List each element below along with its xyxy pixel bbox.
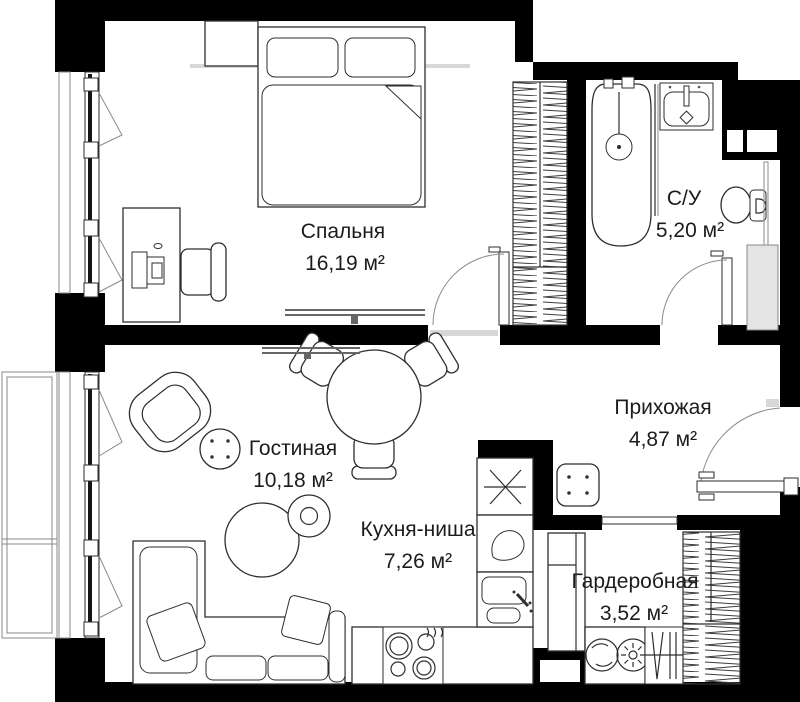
label-wardrobe-area: 3,52 м² xyxy=(600,602,668,625)
sofa-armrest xyxy=(329,611,345,682)
monitor xyxy=(132,252,147,288)
wall-bottom xyxy=(55,682,800,702)
casement-swing xyxy=(99,93,122,146)
tub-faucet xyxy=(604,79,613,88)
seat-cushion xyxy=(268,656,328,680)
wall-top xyxy=(55,0,533,21)
label-hallway-name: Прихожая xyxy=(614,396,711,419)
door-jamb xyxy=(711,251,723,256)
label-kitchen-name: Кухня-ниша xyxy=(360,518,475,541)
casement-swing xyxy=(99,390,122,456)
hallway-items xyxy=(557,408,798,524)
wall-right-upper xyxy=(780,160,800,407)
label-hallway-area: 4,87 м² xyxy=(629,428,697,451)
door-leaf xyxy=(722,258,732,325)
door-leaf xyxy=(697,481,785,492)
pouf xyxy=(557,464,599,506)
entrance-door xyxy=(697,408,798,500)
coffee-tables xyxy=(225,495,330,577)
desk xyxy=(123,208,180,322)
label-kitchen-area: 7,26 м² xyxy=(384,550,452,573)
window-hinge xyxy=(84,465,98,481)
label-bedroom-area: 16,19 м² xyxy=(305,252,385,275)
wall-wardrobe-top-a xyxy=(553,515,602,530)
window-hinge xyxy=(84,142,98,158)
bedroom-door xyxy=(430,247,509,336)
door-jamb-mark xyxy=(699,472,714,478)
wall-bottom-left-corner xyxy=(55,638,105,702)
bedroom-cabinet xyxy=(205,21,258,66)
pouf-seat xyxy=(557,464,599,506)
wall-left-mid xyxy=(55,293,105,372)
window-glazing xyxy=(88,374,92,636)
bed xyxy=(258,27,425,207)
bathtub xyxy=(592,84,651,246)
label-bedroom-name: Спальня xyxy=(301,220,385,243)
drain-dot xyxy=(617,145,621,149)
bath-sink xyxy=(660,83,713,130)
wall-top-jog xyxy=(515,0,533,62)
wardrobe-mid-section xyxy=(645,627,683,684)
door-swing-arc xyxy=(701,408,780,481)
bedroom-tv xyxy=(285,309,425,324)
door-hinge-block xyxy=(784,478,798,495)
window-ledge xyxy=(59,372,70,638)
door-swing-arc xyxy=(433,254,504,325)
bath-duct xyxy=(747,245,778,330)
coffee-table-small xyxy=(288,495,330,537)
window-hinge xyxy=(84,540,98,556)
window-hinge xyxy=(84,622,98,636)
shaft-right xyxy=(747,130,777,152)
dining-table xyxy=(327,350,421,444)
window-hinge xyxy=(84,283,98,297)
shaft-left xyxy=(727,130,743,152)
side-table xyxy=(200,429,240,469)
wall-divider-b xyxy=(500,325,586,345)
wall-niche xyxy=(540,660,580,682)
living-window xyxy=(2,372,122,638)
floor-plan: Спальня 16,19 м² С/У 5,20 м² Прихожая 4,… xyxy=(0,0,800,702)
tub-mixer xyxy=(622,77,634,88)
label-bathroom-name: С/У xyxy=(667,187,702,210)
door-leaf xyxy=(499,252,509,325)
stove xyxy=(383,627,443,684)
wall-kitchen-vert xyxy=(533,458,553,530)
nightstand-right xyxy=(425,64,470,68)
label-bathroom-area: 5,20 м² xyxy=(656,219,724,242)
window-hinge xyxy=(84,220,98,236)
bathroom-door xyxy=(662,251,732,325)
wall-divider-a xyxy=(105,325,428,345)
casement-swing xyxy=(99,238,122,292)
casement-swing xyxy=(99,556,122,618)
balcony-inner xyxy=(7,377,52,633)
bedroom-window xyxy=(59,72,122,297)
label-living-area: 10,18 м² xyxy=(253,469,333,492)
bedroom-furniture xyxy=(123,21,567,336)
monitor-stand xyxy=(152,263,162,278)
living-tv xyxy=(262,347,360,359)
wardrobe-shelving xyxy=(683,532,740,684)
toilet-bowl xyxy=(721,187,751,223)
dot xyxy=(669,86,672,89)
label-living-name: Гостиная xyxy=(249,437,337,460)
window-ledge xyxy=(59,72,70,293)
blanket xyxy=(262,85,421,205)
wall-bath-top xyxy=(533,62,738,80)
window-hinge xyxy=(84,375,98,389)
pillow xyxy=(267,38,338,77)
chair-seat xyxy=(181,249,214,295)
toilet xyxy=(721,187,766,223)
door-jamb-mark xyxy=(699,494,714,500)
bedroom-closet-hatched xyxy=(513,82,567,325)
window-glazing xyxy=(88,74,92,291)
wall-wardrobe-top-b xyxy=(677,515,760,530)
sink-faucet xyxy=(684,86,689,106)
seat-cushion xyxy=(206,656,266,680)
balcony-outline xyxy=(2,372,57,638)
door-swing-arc xyxy=(662,260,727,325)
wall-kitchen-top xyxy=(478,440,553,458)
wall-divider-c xyxy=(586,325,660,345)
floor-plan-canvas: Спальня 16,19 м² С/У 5,20 м² Прихожая 4,… xyxy=(0,0,800,702)
label-wardrobe-name: Гардеробная xyxy=(571,570,698,593)
wardrobe-threshold xyxy=(602,517,677,524)
side-table-top xyxy=(200,429,240,469)
door-jamb xyxy=(489,247,500,252)
kitchen-sink-small xyxy=(487,608,520,623)
entry-jamb-mark xyxy=(766,399,779,407)
pillow xyxy=(345,38,415,77)
wall-se-corner xyxy=(740,515,800,702)
wall-bed-bath xyxy=(567,80,586,345)
chair-back xyxy=(211,243,226,301)
desk-chair xyxy=(181,243,226,301)
kitchen-column xyxy=(477,458,533,627)
dot xyxy=(698,86,701,89)
appliance-box xyxy=(585,627,645,684)
kitchen-sink xyxy=(482,577,526,604)
window-hinge xyxy=(84,78,98,91)
desk-lamp xyxy=(154,244,162,249)
washer-dryer xyxy=(585,627,649,684)
